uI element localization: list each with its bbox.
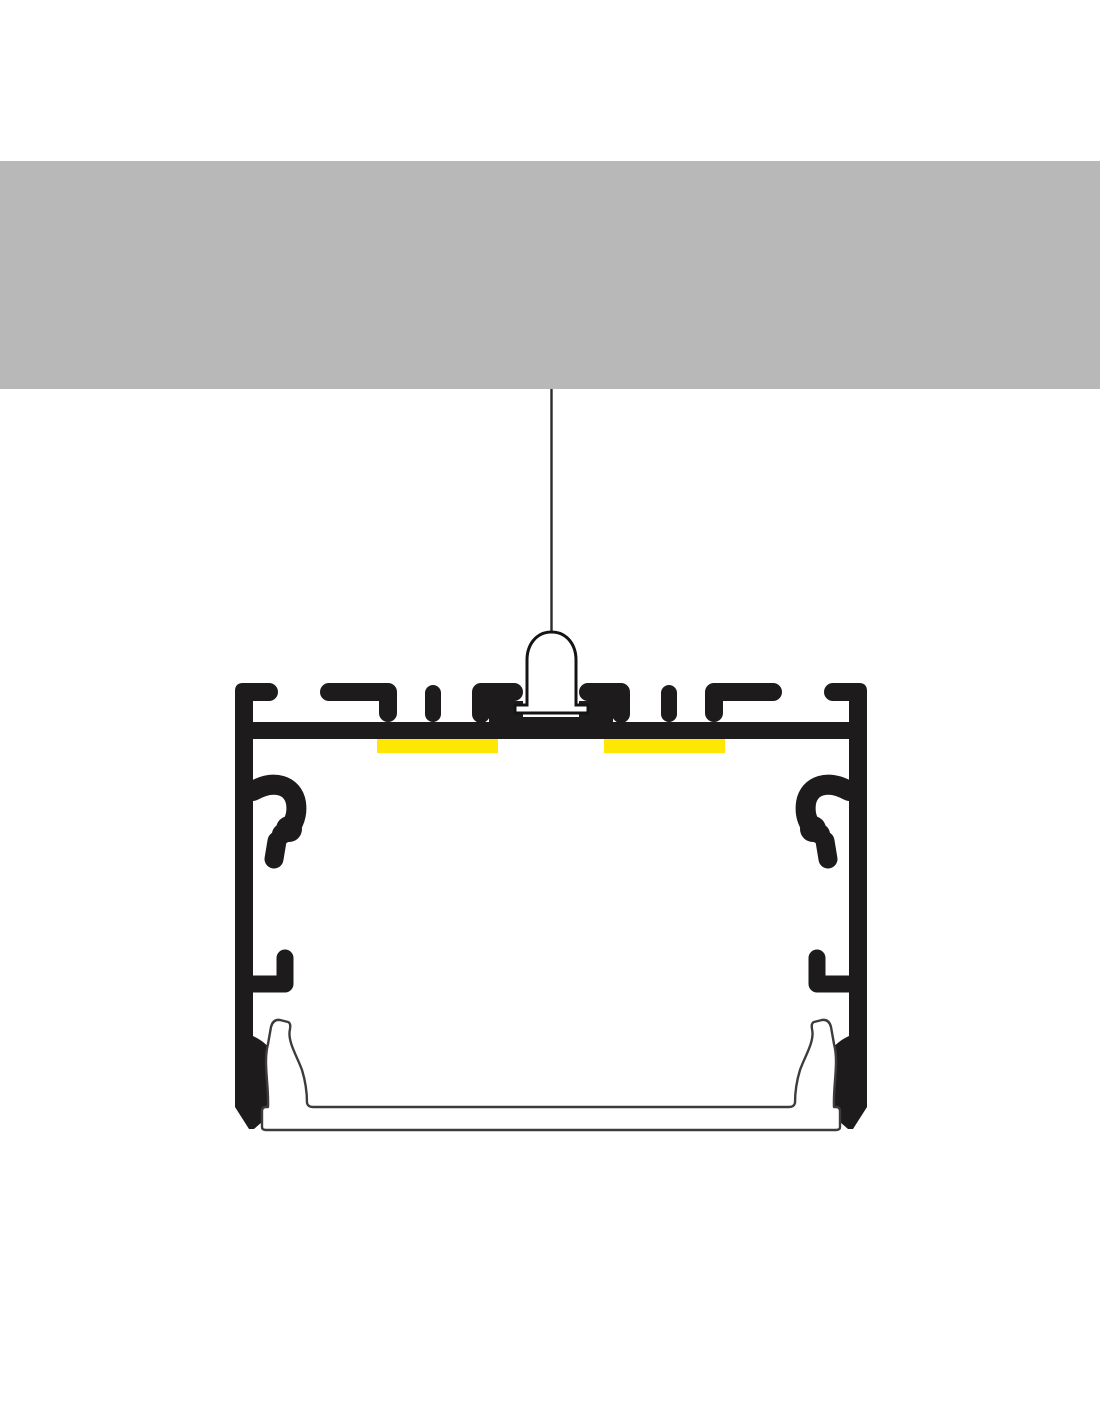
clip-hook-upper-right bbox=[800, 785, 849, 859]
t-slot-tooth bbox=[329, 692, 388, 713]
profile-diagram bbox=[0, 0, 1100, 1422]
clip-hook-middle-right bbox=[817, 958, 848, 984]
clip-hook-upper-left bbox=[253, 785, 302, 859]
diagram-canvas bbox=[0, 0, 1100, 1422]
suspension-mount bbox=[515, 632, 588, 713]
diffuser bbox=[262, 1020, 840, 1130]
clip-hook-middle-left bbox=[254, 958, 285, 984]
ceiling-slab bbox=[0, 161, 1100, 389]
mounting-profile bbox=[235, 683, 867, 1129]
led-strip-right bbox=[604, 739, 725, 753]
suspension-slot-floor bbox=[489, 717, 613, 739]
led-strip-left bbox=[377, 739, 498, 753]
t-slot-tooth bbox=[714, 692, 773, 713]
